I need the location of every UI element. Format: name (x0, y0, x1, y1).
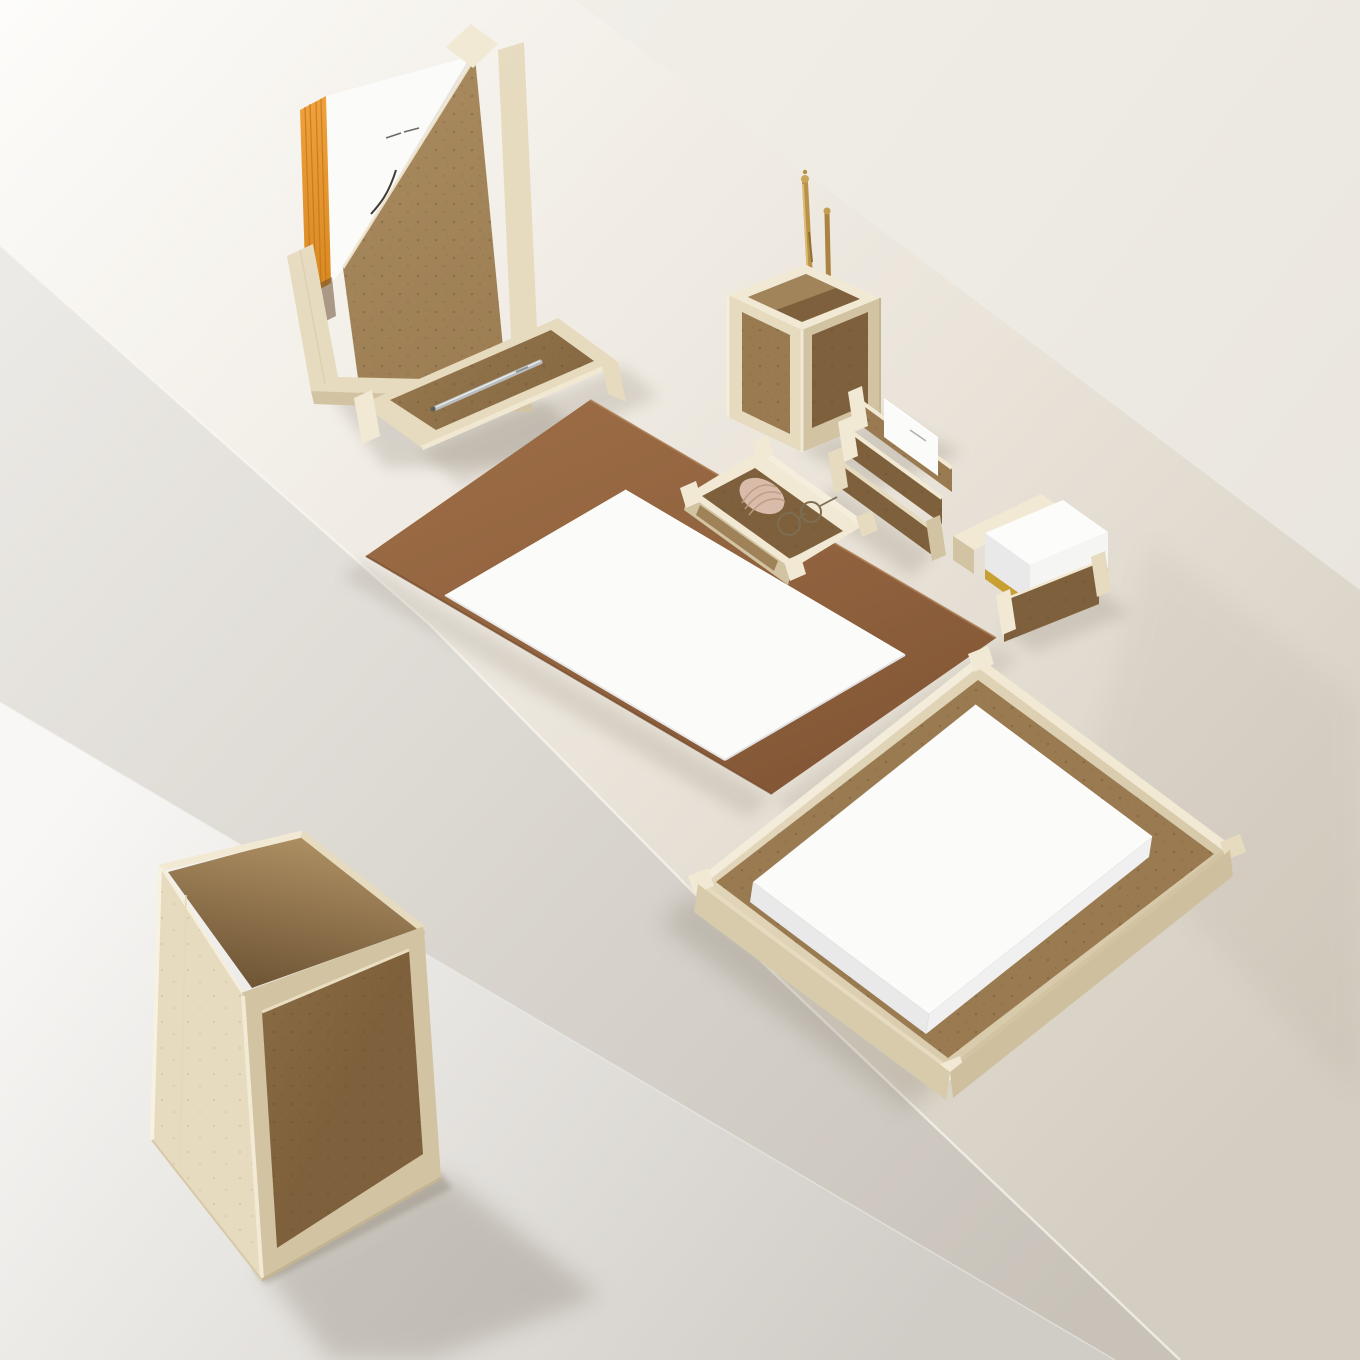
brass-pen-1-top (803, 170, 807, 174)
brass-pen-1-knob (801, 175, 809, 183)
product-photo-scene: Magazine file with white catalogue and o… (0, 0, 1360, 1360)
desk-set-photo: Magazine file with white catalogue and o… (0, 0, 1360, 1360)
silver-pen-tip (431, 407, 436, 412)
brass-pen-2-knob (824, 208, 831, 215)
